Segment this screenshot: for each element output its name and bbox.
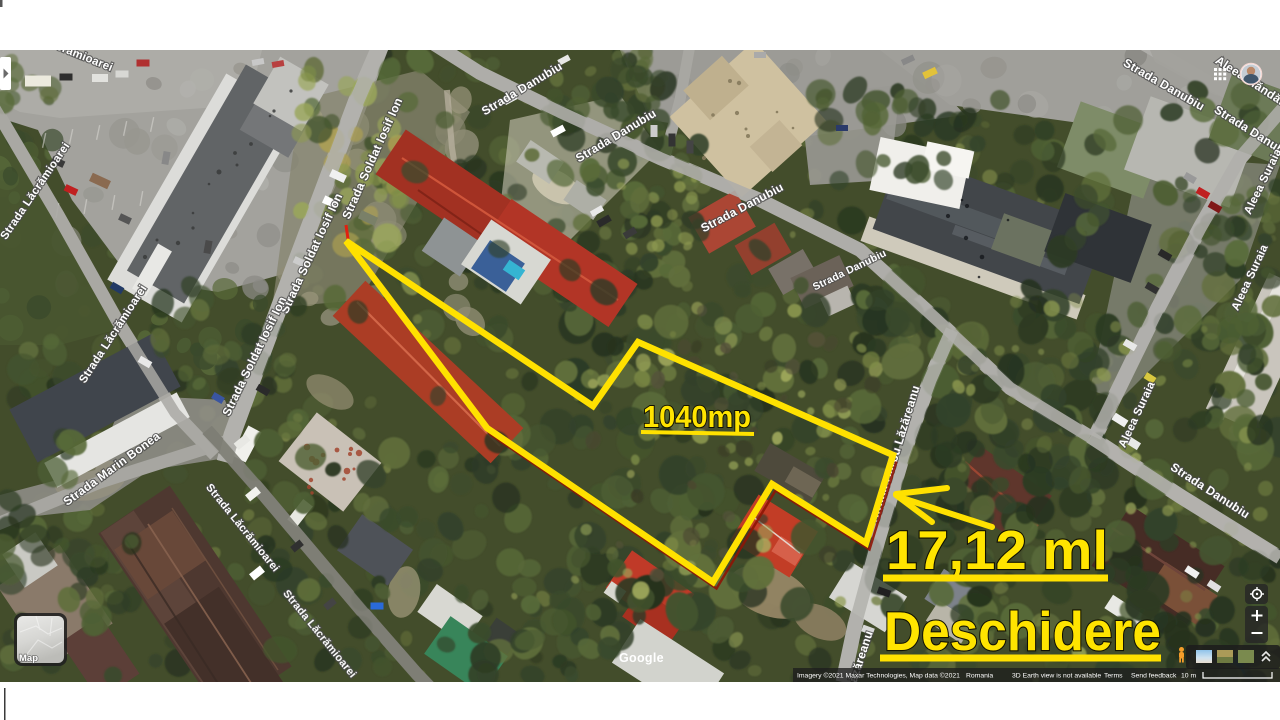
- svg-text:Deschidere: Deschidere: [884, 600, 1161, 662]
- svg-text:Google: Google: [619, 651, 664, 665]
- svg-text:3D Earth view is not available: 3D Earth view is not available: [1012, 673, 1101, 680]
- svg-text:Imagery ©2021 Maxar Technologi: Imagery ©2021 Maxar Technologies, Map da…: [797, 672, 960, 680]
- svg-text:Map: Map: [19, 653, 38, 664]
- svg-text:Send feedback: Send feedback: [1131, 673, 1177, 680]
- svg-text:10 m: 10 m: [1181, 673, 1196, 680]
- svg-text:Terms: Terms: [1104, 673, 1123, 680]
- svg-text:1040mp: 1040mp: [643, 399, 751, 434]
- svg-text:Romania: Romania: [966, 673, 993, 680]
- svg-text:17,12 ml: 17,12 ml: [886, 519, 1108, 581]
